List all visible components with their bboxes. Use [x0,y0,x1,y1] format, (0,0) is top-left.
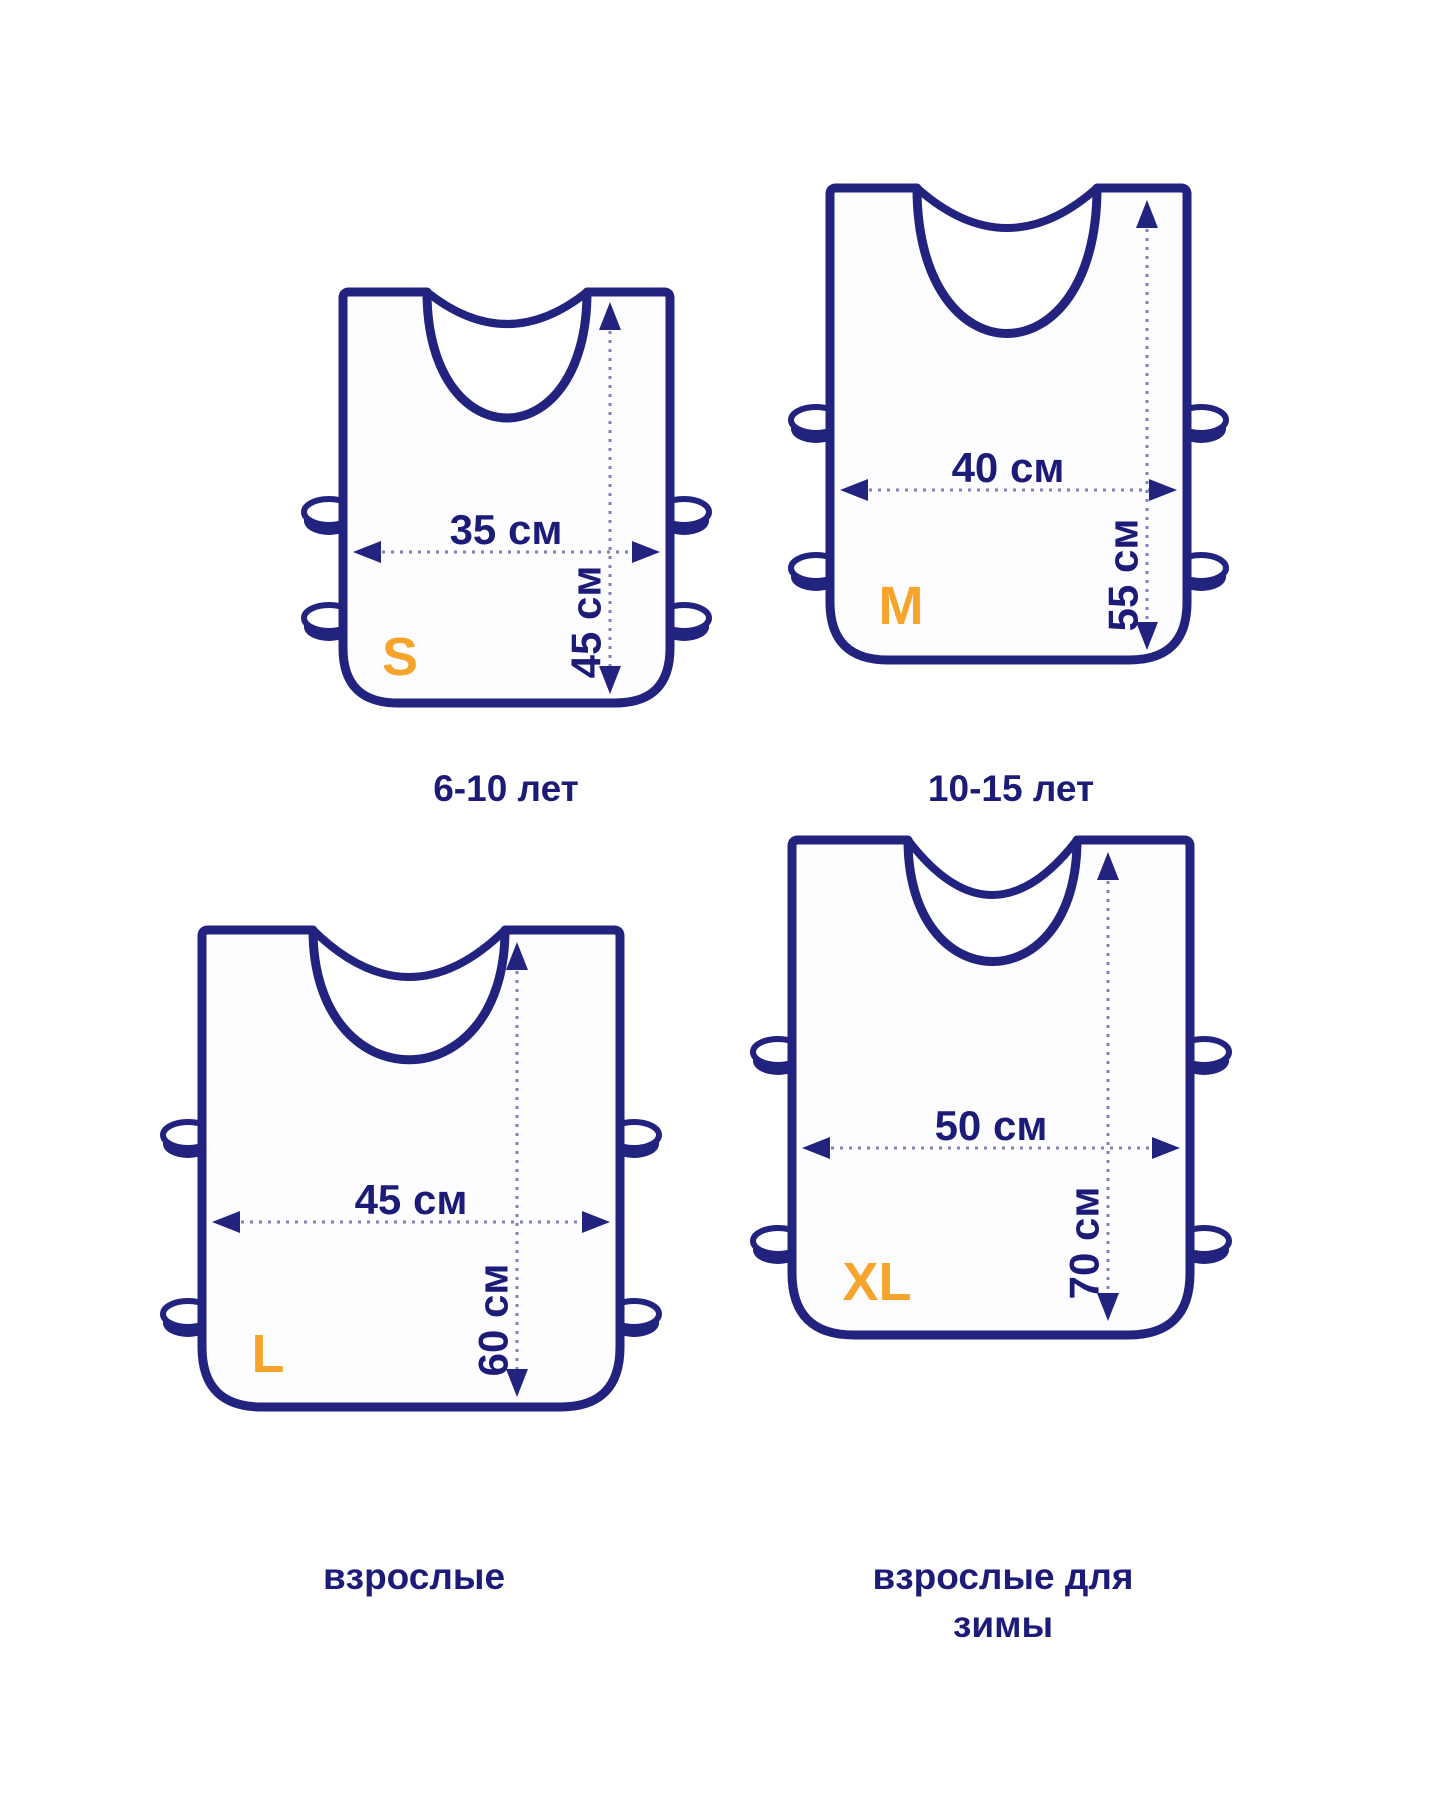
width-label: 50 см [935,1102,1048,1149]
size-letter: M [879,576,924,636]
height-label: 70 см [1061,1187,1108,1300]
vest-caption: 10-15 лет [861,765,1161,813]
size-letter: L [252,1324,285,1384]
vest-caption: 6-10 лет [356,765,656,813]
size-chart-canvas: 35 см 45 см S 6-10 лет 40 см [0,0,1446,1809]
vest-caption: взрослые для зимы [828,1553,1178,1649]
neck-back-line [427,292,587,324]
vest-diagram-l: 45 см 60 см L [202,930,620,1407]
neck-back-line [917,188,1097,228]
neck-back-line [313,930,505,977]
width-label: 45 см [355,1176,468,1223]
vest-diagram-xl: 50 см 70 см XL [792,840,1190,1335]
width-label: 35 см [450,506,563,553]
vest-diagram-s: 35 см 45 см S [343,292,670,703]
width-label: 40 см [952,444,1065,491]
height-label: 55 см [1100,519,1147,632]
vest-caption-line: взрослые для [828,1553,1178,1601]
neck-back-line [908,840,1077,895]
height-label: 45 см [563,566,610,679]
height-label: 60 см [470,1264,517,1377]
vest-caption-line: зимы [828,1601,1178,1649]
vest-caption: взрослые [264,1553,564,1601]
size-letter: XL [842,1252,911,1312]
vest-diagram-m: 40 см 55 см M [830,188,1187,660]
size-letter: S [382,627,418,687]
